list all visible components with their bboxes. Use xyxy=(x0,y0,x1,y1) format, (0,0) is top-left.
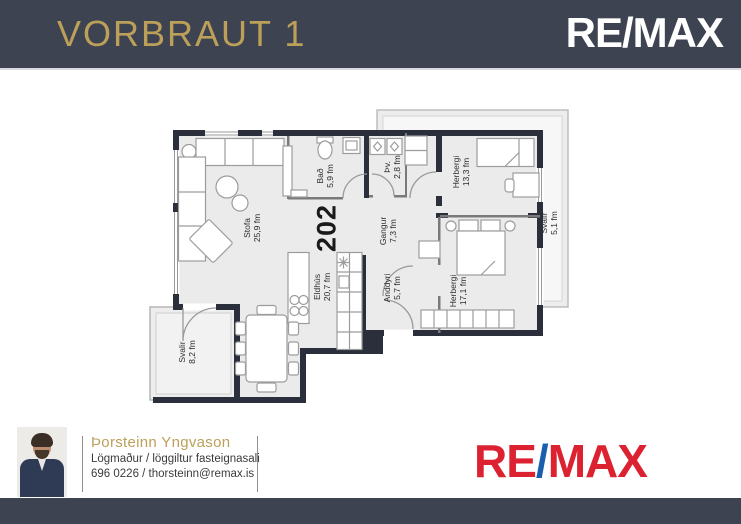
dining-table xyxy=(246,315,287,382)
agent-photo-hair xyxy=(31,433,53,447)
cooktop-burner xyxy=(290,296,299,305)
desk xyxy=(513,173,539,197)
agent-name: Þorsteinn Yngvason xyxy=(91,434,230,451)
agent-photo xyxy=(17,427,67,497)
toilet xyxy=(318,141,332,159)
room-label-anddyri: Anddyri5,7 fm xyxy=(382,274,402,303)
sofa-top xyxy=(196,139,284,166)
room-label-gangur: Gangur7,3 fm xyxy=(378,217,398,245)
remax-logo-footer: RE/MAX xyxy=(474,434,647,488)
chair xyxy=(289,322,299,335)
room-label-herbergi-17: Herbergi17,1 fm xyxy=(448,275,468,308)
footer-bar xyxy=(0,498,741,524)
washer-icon xyxy=(370,139,385,155)
unit-number: 202 xyxy=(312,204,343,252)
chair xyxy=(289,342,299,355)
header-divider xyxy=(0,68,741,70)
remax-logo-header: RE/MAX xyxy=(566,9,723,57)
nightstand xyxy=(446,221,456,231)
brand-max: MAX xyxy=(548,435,647,487)
room-label-svalir-8: Svalir8,2 fm xyxy=(177,340,197,364)
agent-photo-beard xyxy=(35,450,49,459)
chair xyxy=(236,342,246,355)
chair xyxy=(257,306,276,315)
chair xyxy=(257,383,276,392)
dryer-icon xyxy=(387,139,402,155)
brand-slash: / xyxy=(536,435,548,487)
cooktop-burner xyxy=(299,307,308,316)
page-title: VORBRAUT 1 xyxy=(57,13,306,55)
chair xyxy=(236,322,246,335)
pouf xyxy=(232,195,248,211)
chair xyxy=(236,362,246,375)
floor-plan-drawing xyxy=(140,98,590,410)
floor-lamp xyxy=(182,145,196,159)
brand-re: RE xyxy=(566,9,622,56)
room-label-stofa: Stofa25,9 fm xyxy=(242,214,262,242)
desk-chair xyxy=(505,179,514,192)
cooktop-burner xyxy=(299,296,308,305)
brand-max: MAX xyxy=(633,9,723,56)
tv-bench xyxy=(283,146,292,196)
cooktop-burner xyxy=(290,307,299,316)
chair xyxy=(289,362,299,375)
radiator xyxy=(421,310,514,328)
room-label-bad: Bað5,9 fm xyxy=(315,164,335,188)
nightstand xyxy=(505,221,515,231)
double-bed xyxy=(457,231,505,275)
headboard xyxy=(459,220,478,231)
single-bed xyxy=(477,139,534,167)
room-label-herbergi-13: Herbergi13,3 fm xyxy=(451,156,471,189)
floor-plan: Stofa25,9 fm Bað5,9 fm Þv.2,8 fm Gangur7… xyxy=(140,98,590,410)
divider-left xyxy=(82,436,83,492)
brand-slash: / xyxy=(622,9,633,56)
shower xyxy=(291,190,307,197)
pouf xyxy=(216,176,238,198)
brand-re: RE xyxy=(474,435,536,487)
room-label-svalir-5: Svalir5,1 fm xyxy=(539,211,559,235)
cabinet xyxy=(419,241,440,258)
agent-role: Lögmaður / löggiltur fasteignasali xyxy=(91,453,260,465)
agent-contact: 696 0226 / thorsteinn@remax.is xyxy=(91,468,254,480)
room-label-tv: Þv.2,8 fm xyxy=(382,155,402,179)
headboard xyxy=(481,220,500,231)
room-label-eldhus: Eldhús20,7 fm xyxy=(312,273,332,301)
